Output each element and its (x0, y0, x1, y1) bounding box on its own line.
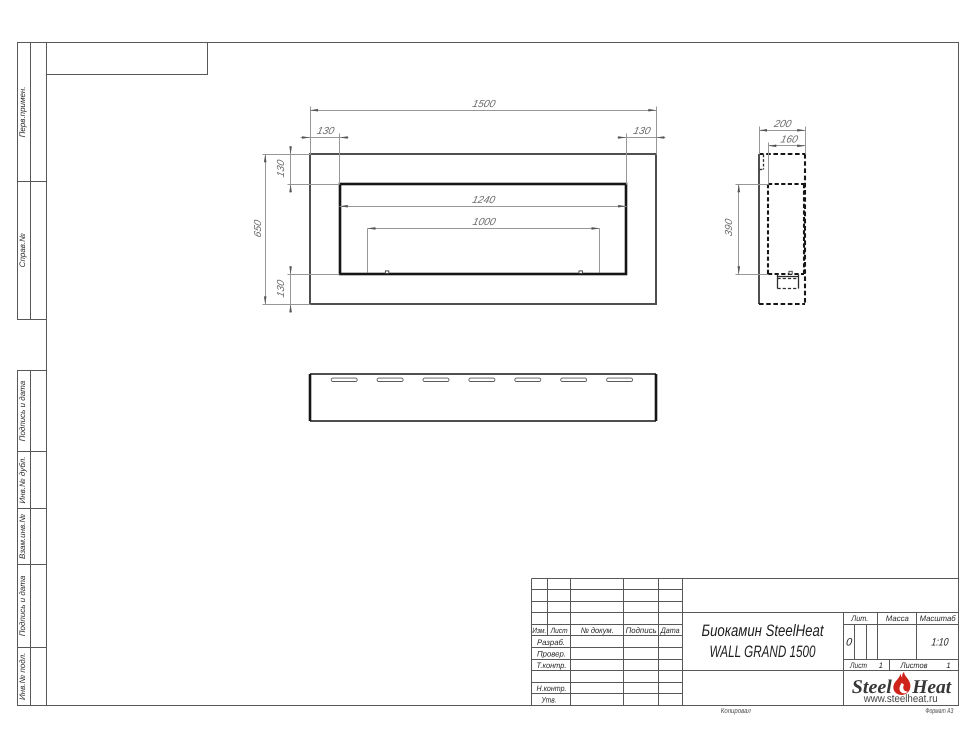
svg-text:130: 130 (632, 126, 652, 137)
svg-text:Справ.№: Справ.№ (18, 233, 27, 267)
svg-text:№ докум.: № докум. (581, 626, 614, 635)
svg-text:Листов: Листов (900, 661, 928, 670)
svg-text:Разраб.: Разраб. (537, 638, 565, 647)
svg-text:1240: 1240 (471, 195, 497, 206)
svg-text:130: 130 (276, 279, 287, 299)
svg-text:Инв.№ дубл.: Инв.№ дубл. (18, 457, 27, 504)
svg-text:Копировал: Копировал (721, 706, 751, 715)
svg-text:Лист: Лист (550, 626, 568, 635)
svg-text:Лит.: Лит. (850, 614, 868, 623)
svg-text:www.steelheat.ru: www.steelheat.ru (863, 693, 938, 705)
svg-text:390: 390 (724, 218, 735, 238)
svg-text:Провер.: Провер. (537, 649, 566, 658)
svg-text:130: 130 (276, 159, 287, 179)
svg-text:1000: 1000 (471, 217, 497, 228)
svg-text:1: 1 (946, 661, 950, 670)
svg-text:130: 130 (316, 126, 336, 137)
svg-text:200: 200 (772, 119, 793, 130)
svg-text:1:10: 1:10 (931, 637, 949, 649)
svg-text:Биокамин SteelHeat: Биокамин SteelHeat (702, 622, 825, 640)
svg-text:1: 1 (879, 661, 883, 670)
svg-text:WALL GRAND 1500: WALL GRAND 1500 (710, 643, 817, 661)
svg-text:Инв.№ подл.: Инв.№ подл. (18, 653, 27, 700)
svg-text:Подпись: Подпись (626, 626, 657, 635)
svg-text:Взам.инв.№: Взам.инв.№ (18, 514, 27, 559)
svg-text:Т.контр.: Т.контр. (537, 661, 567, 670)
svg-text:Перв.примен.: Перв.примен. (18, 86, 27, 137)
svg-text:Н.контр.: Н.контр. (537, 684, 567, 693)
svg-text:650: 650 (253, 219, 264, 239)
svg-text:Масса: Масса (886, 614, 910, 623)
svg-text:1500: 1500 (471, 99, 497, 110)
svg-text:160: 160 (779, 135, 799, 146)
svg-text:0: 0 (845, 637, 852, 649)
svg-text:Изм.: Изм. (532, 626, 546, 635)
svg-text:Формат А3: Формат А3 (925, 706, 953, 715)
svg-text:Дата: Дата (660, 626, 680, 635)
svg-text:Лист: Лист (849, 661, 867, 670)
svg-text:Масштаб: Масштаб (920, 614, 956, 623)
svg-text:Подпись и дата: Подпись и дата (18, 575, 27, 636)
svg-text:Подпись и дата: Подпись и дата (18, 380, 27, 441)
svg-text:Утв.: Утв. (541, 696, 557, 705)
